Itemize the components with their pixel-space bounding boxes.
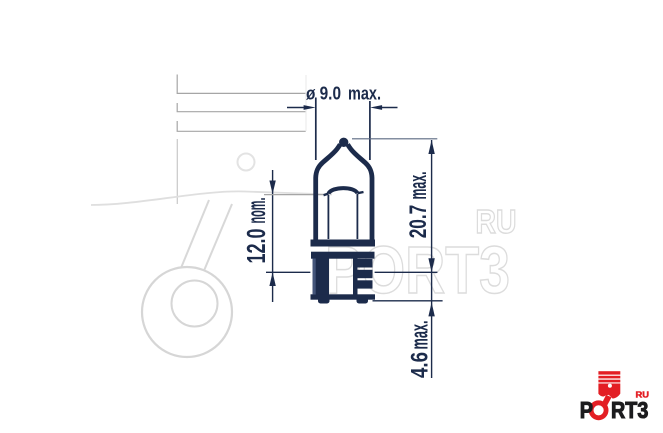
svg-text:ø 9.0: ø 9.0: [306, 83, 341, 104]
svg-text:RT3: RT3: [611, 397, 648, 423]
svg-text:nom.: nom.: [241, 198, 271, 224]
svg-text:12.0: 12.0: [241, 229, 271, 264]
svg-text:20.7: 20.7: [405, 205, 432, 239]
svg-text:4.6: 4.6: [407, 352, 434, 378]
svg-text:max.: max.: [407, 321, 434, 350]
svg-text:RU: RU: [476, 203, 517, 240]
svg-text:P: P: [580, 397, 593, 423]
svg-text:max.: max.: [405, 172, 432, 200]
svg-text:RU: RU: [636, 390, 650, 400]
svg-text:max.: max.: [348, 83, 381, 104]
